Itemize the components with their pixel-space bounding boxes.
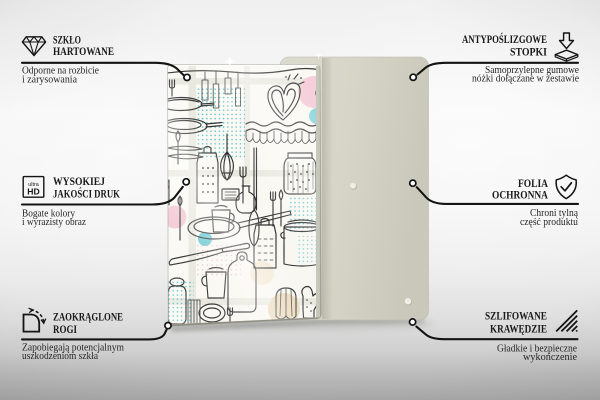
- svg-text:i wyrazisty obraz: i wyrazisty obraz: [22, 217, 86, 228]
- svg-text:uszkodzeniom szkła: uszkodzeniom szkła: [22, 351, 98, 362]
- svg-text:HD: HD: [27, 187, 39, 197]
- svg-text:ROGI: ROGI: [53, 324, 77, 336]
- svg-text:ANTYPOŚLIZGOWE: ANTYPOŚLIZGOWE: [462, 34, 547, 46]
- svg-text:OCHRONNA: OCHRONNA: [492, 189, 548, 201]
- svg-text:część produktu: część produktu: [520, 217, 579, 228]
- svg-text:SZKŁO: SZKŁO: [53, 35, 81, 47]
- svg-text:wykończenie: wykończenie: [523, 352, 577, 363]
- svg-text:i zarysowania: i zarysowania: [22, 74, 77, 85]
- svg-text:KRAWĘDZIE: KRAWĘDZIE: [490, 324, 547, 336]
- svg-text:HARTOWANE: HARTOWANE: [53, 46, 114, 58]
- svg-text:ZAOKRĄGLONE: ZAOKRĄGLONE: [53, 311, 123, 323]
- svg-text:nóżki dołączane w zestawie: nóżki dołączane w zestawie: [472, 74, 579, 85]
- svg-text:SZLIFOWANE: SZLIFOWANE: [485, 310, 547, 322]
- svg-text:JAKOŚCI DRUK: JAKOŚCI DRUK: [53, 189, 120, 201]
- svg-text:FOLIA: FOLIA: [518, 178, 548, 190]
- svg-text:WYSOKIEJ: WYSOKIEJ: [53, 176, 105, 188]
- svg-text:STOPKI: STOPKI: [510, 46, 547, 58]
